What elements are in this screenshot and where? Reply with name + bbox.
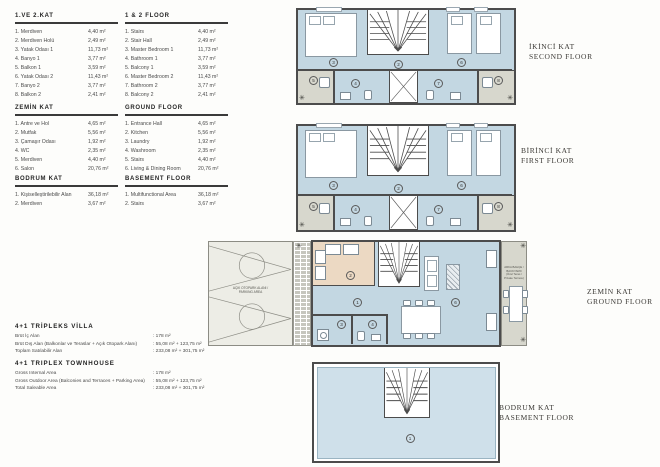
single-bed — [476, 13, 501, 54]
room-area: 3,59 m² — [88, 64, 118, 73]
legend-row: 3. Master Bedroom 1 11,73 m² — [125, 46, 228, 55]
dining-chair — [427, 333, 435, 339]
washing-machine — [317, 329, 329, 341]
dining-chair — [403, 333, 411, 339]
room-area: 3,77 m² — [198, 82, 228, 91]
room-label: 1. Kişiselleştirilebilir Alan — [15, 191, 88, 200]
plant-icon: ✳ — [296, 243, 302, 250]
legend-title: GROUND FLOOR — [125, 105, 228, 111]
room-number-kitchen: 2 — [346, 271, 355, 280]
balcony-left: ✳ — [298, 70, 333, 103]
summary-villa-tr: 4+1 TRİPLEKS VİLLA Brüt İç Alan : 178 m²… — [15, 323, 233, 356]
room-number-multifunctional: 1 — [406, 434, 415, 443]
cushion — [427, 275, 437, 287]
divider — [125, 22, 228, 24]
summary-rows: Gross Internal Area : 178 m² Gross Outdo… — [15, 370, 233, 393]
room-number-bedroom1: 3 — [329, 181, 338, 190]
legend-row: 4. Bathroom 1 3,77 m² — [125, 55, 228, 64]
room-label: 6. Yatak Odası 2 — [15, 73, 88, 82]
room-area: 5,56 m² — [198, 129, 228, 138]
paved-path — [293, 241, 311, 346]
room-area: 1,92 m² — [198, 138, 228, 147]
toilet — [357, 331, 365, 341]
room-label: 2. Mutfak — [15, 129, 88, 138]
room-area: 4,40 m² — [88, 156, 118, 165]
stove — [325, 244, 341, 255]
room-number-bath1: 4 — [351, 79, 360, 88]
summary-row: Toplam Satılabilir Alan : 233,08 m² + 30… — [15, 348, 233, 356]
single-bed — [447, 13, 472, 54]
legend-rows: 1. Multifunctional Area 36,18 m² 2. Stai… — [125, 191, 228, 209]
rug — [446, 264, 460, 290]
toilet — [364, 90, 372, 100]
room-label: 3. Çamaşır Odası — [15, 138, 88, 147]
floor-label-ground: ZEMİN KAT GROUND FLOOR — [587, 287, 653, 307]
window — [474, 7, 488, 12]
room-area: 4,40 m² — [198, 28, 228, 37]
room-label: 4. Banyo 1 — [15, 55, 88, 64]
room-number-bath2: 7 — [434, 79, 443, 88]
legend-row: 2. Mutfak 5,56 m² — [15, 129, 118, 138]
room-area: 20,76 m² — [198, 165, 228, 174]
plan-ground-floor: AÇIK OTOPARK ALANI / PARKING AREA ✳ — [208, 240, 527, 347]
ground-unit: 2 1 3 4 6 — [311, 240, 501, 347]
room-label: 5. Merdiven — [15, 156, 88, 165]
plant-icon: ✳ — [299, 222, 305, 229]
room-area: 3,77 m² — [88, 55, 118, 64]
room-label: 2. Kitchen — [125, 129, 198, 138]
single-bed — [447, 130, 472, 176]
room-number-stairhall: 2 — [394, 184, 403, 193]
cabinet — [486, 313, 497, 331]
legend-basement-tr: BODRUM KAT 1. Kişiselleştirilebilir Alan… — [15, 176, 118, 209]
divider — [15, 114, 118, 116]
legend-row: 3. Çamaşır Odası 1,92 m² — [15, 138, 118, 147]
divider — [15, 22, 118, 24]
room-area: 36,18 m² — [88, 191, 118, 200]
room-label: 6. Salon — [15, 165, 88, 174]
room-label: 8. Balkon 2 — [15, 91, 88, 100]
room-label: 4. Washroom — [125, 147, 198, 156]
room-label: 7. Bathroom 2 — [125, 82, 198, 91]
kitchen — [313, 242, 375, 286]
legend-rows: 1. Kişiselleştirilebilir Alan 36,18 m² 2… — [15, 191, 118, 209]
window — [316, 7, 342, 12]
terrace-chair — [522, 290, 528, 298]
wall — [313, 314, 387, 316]
balcony-right: ✳ — [479, 195, 514, 230]
washer-drum — [320, 332, 327, 339]
room-number-balcony2: 8 — [494, 76, 503, 85]
sink — [340, 92, 351, 100]
toilet — [364, 216, 372, 226]
room-label: 2. Stairs — [125, 200, 198, 209]
legend-row: 1. Multifunctional Area 36,18 m² — [125, 191, 228, 200]
staircase — [367, 10, 429, 55]
basement-room: 1 — [317, 367, 496, 459]
room-area: 11,73 m² — [88, 46, 118, 55]
room-label: 6. Master Bedroom 2 — [125, 73, 198, 82]
legend-row: 7. Banyo 2 3,77 m² — [15, 82, 118, 91]
legend-rows: 1. Merdiven 4,40 m² 2. Merdiven Holü 2,4… — [15, 28, 118, 100]
legend-row: 2. Kitchen 5,56 m² — [125, 129, 228, 138]
room-area: 1,92 m² — [88, 138, 118, 147]
legend-rows: 1. Stairs 4,40 m² 2. Stair Hall 2,49 m² … — [125, 28, 228, 100]
dining-chair — [415, 333, 423, 339]
room-area: 4,40 m² — [88, 28, 118, 37]
room-label: 1. Antre ve Hol — [15, 120, 88, 129]
legend-row: 5. Balcony 1 3,59 m² — [125, 64, 228, 73]
parking-label: AÇIK OTOPARK ALANI / PARKING AREA — [209, 286, 292, 294]
legend-title: 1 & 2 FLOOR — [125, 13, 228, 19]
double-bed — [305, 13, 357, 57]
legend-rows: 1. Antre ve Hol 4,65 m² 2. Mutfak 5,56 m… — [15, 120, 118, 174]
pillow — [480, 133, 492, 142]
room-number-washroom: 4 — [368, 320, 377, 329]
cushion — [427, 260, 437, 272]
legend-row: 1. Kişiselleştirilebilir Alan 36,18 m² — [15, 191, 118, 200]
summary-label: Toplam Satılabilir Alan — [15, 348, 153, 356]
wall — [333, 195, 335, 230]
legend-row: 8. Balcony 2 2,41 m² — [125, 91, 228, 100]
balcony-right: ✳ — [479, 70, 514, 103]
legend-title: 1.VE 2.KAT — [15, 13, 118, 19]
parking-area: AÇIK OTOPARK ALANI / PARKING AREA — [208, 241, 293, 346]
room-number-bedroom1: 3 — [329, 58, 338, 67]
dining-chair — [403, 300, 411, 306]
legend-row: 2. Stairs 3,67 m² — [125, 200, 228, 209]
legend-row: 6. Yatak Odası 2 11,43 m² — [15, 73, 118, 82]
balcony-chair — [319, 77, 330, 88]
plant-icon: ✳ — [520, 337, 526, 344]
single-bed — [476, 130, 501, 176]
floor-label-second: İKİNCİ KAT SECOND FLOOR — [529, 42, 593, 62]
pillow — [451, 16, 463, 25]
summary-value: : 233,08 m² + 301,75 m² — [153, 385, 233, 393]
legend-ground-tr: ZEMİN KAT 1. Antre ve Hol 4,65 m² 2. Mut… — [15, 105, 118, 174]
floor-label-line1: BİRİNCİ KAT — [521, 146, 574, 156]
floor-label-line1: İKİNCİ KAT — [529, 42, 593, 52]
room-label: 1. Multifunctional Area — [125, 191, 198, 200]
legend-row: 2. Merdiven 3,67 m² — [15, 200, 118, 209]
room-area: 2,49 m² — [88, 37, 118, 46]
wall — [386, 314, 388, 344]
summary-townhouse-en: 4+1 TRIPLEX TOWNHOUSE Gross Internal Are… — [15, 360, 233, 393]
legend-row: 8. Balkon 2 2,41 m² — [15, 91, 118, 100]
room-number-balcony1: 5 — [309, 76, 318, 85]
floorplan-sheet: 1.VE 2.KAT 1. Merdiven 4,40 m² 2. Merdiv… — [0, 0, 660, 467]
balcony-left: ✳ — [298, 195, 333, 230]
plant-icon: ✳ — [299, 95, 305, 102]
counter — [315, 266, 326, 280]
legend-ground-en: GROUND FLOOR 1. Entrance Hall 4,65 m² 2.… — [125, 105, 228, 174]
sofa — [424, 256, 439, 291]
room-area: 4,65 m² — [88, 120, 118, 129]
terrace-chair — [522, 306, 528, 314]
legend-row: 1. Antre ve Hol 4,65 m² — [15, 120, 118, 129]
legend-row: 3. Laundry 1,92 m² — [125, 138, 228, 147]
room-area: 4,40 m² — [198, 156, 228, 165]
balcony-chair — [319, 203, 330, 214]
legend-row: 4. WC 2,35 m² — [15, 147, 118, 156]
staircase — [367, 126, 429, 176]
summary-value: : 55,08 m² + 123,75 m² — [153, 378, 233, 386]
room-number-bedroom2: 6 — [457, 58, 466, 67]
double-bed — [305, 130, 357, 178]
room-label: 3. Laundry — [125, 138, 198, 147]
room-label: 3. Yatak Odası 1 — [15, 46, 88, 55]
sink — [371, 334, 381, 341]
summary-label: Brüt İç Alan — [15, 333, 153, 341]
room-number-entrance: 1 — [353, 298, 362, 307]
room-area: 5,56 m² — [88, 129, 118, 138]
legend-row: 7. Bathroom 2 3,77 m² — [125, 82, 228, 91]
floor-label-line2: BASEMENT FLOOR — [499, 413, 574, 423]
room-number-bath1: 4 — [351, 205, 360, 214]
legend-basement-en: BASEMENT FLOOR 1. Multifunctional Area 3… — [125, 176, 228, 209]
room-area: 2,49 m² — [198, 37, 228, 46]
floor-label-line1: BODRUM KAT — [499, 403, 574, 413]
summary-value: : 178 m² — [153, 370, 233, 378]
legend-row: 4. Washroom 2,35 m² — [125, 147, 228, 156]
room-label: 2. Merdiven — [15, 200, 88, 209]
legend-row: 2. Merdiven Holü 2,49 m² — [15, 37, 118, 46]
summary-label: Gross Internal Area — [15, 370, 153, 378]
legend-row: 6. Master Bedroom 2 11,43 m² — [125, 73, 228, 82]
room-label: 8. Balcony 2 — [125, 91, 198, 100]
room-number-living: 6 — [451, 298, 460, 307]
staircase — [384, 368, 430, 418]
room-number-stairhall: 2 — [394, 60, 403, 69]
summary-row: Brüt Dış Alan (Balkonlar ve Teraslar + A… — [15, 341, 233, 349]
room-label: 4. WC — [15, 147, 88, 156]
legend-title: ZEMİN KAT — [15, 105, 118, 111]
pillow — [451, 133, 463, 142]
plan-basement: 1 — [312, 362, 500, 463]
room-area: 11,43 m² — [88, 73, 118, 82]
summary-title: 4+1 TRIPLEX TOWNHOUSE — [15, 360, 233, 367]
legend-floor12-en: 1 & 2 FLOOR 1. Stairs 4,40 m² 2. Stair H… — [125, 13, 228, 100]
sink — [450, 92, 461, 100]
pillow — [480, 16, 492, 25]
room-label: 5. Stairs — [125, 156, 198, 165]
room-area: 36,18 m² — [198, 191, 228, 200]
plant-icon: ✳ — [507, 222, 513, 229]
room-area: 3,59 m² — [198, 64, 228, 73]
room-number-laundry: 3 — [337, 320, 346, 329]
room-area: 11,73 m² — [198, 46, 228, 55]
kitchen-sink — [343, 244, 359, 255]
room-number-bedroom2: 6 — [457, 181, 466, 190]
legend-row: 2. Stair Hall 2,49 m² — [125, 37, 228, 46]
dining-chair — [415, 300, 423, 306]
room-label: 4. Bathroom 1 — [125, 55, 198, 64]
legend-row: 6. Living & Dining Room 20,76 m² — [125, 165, 228, 174]
floor-label-line2: GROUND FLOOR — [587, 297, 653, 307]
room-area: 2,35 m² — [88, 147, 118, 156]
divider — [15, 185, 118, 187]
room-label: 5. Balcony 1 — [125, 64, 198, 73]
legend-row: 5. Merdiven 4,40 m² — [15, 156, 118, 165]
divider — [125, 114, 228, 116]
legend-row: 1. Entrance Hall 4,65 m² — [125, 120, 228, 129]
room-label: 7. Banyo 2 — [15, 82, 88, 91]
legend-title: BASEMENT FLOOR — [125, 176, 228, 182]
summary-row: Brüt İç Alan : 178 m² — [15, 333, 233, 341]
summary-label: Brüt Dış Alan (Balkonlar ve Teraslar + A… — [15, 341, 153, 349]
fridge — [315, 250, 326, 264]
pillow — [323, 133, 335, 142]
light-shaft — [389, 195, 418, 230]
toilet — [426, 216, 434, 226]
plan-second-floor: ✳ ✳ 3 2 6 4 7 5 8 — [296, 8, 516, 105]
back-terrace: ✳ ✳ ARKA BAHÇE / BACKYARD (Özel Teras / … — [501, 241, 527, 346]
sink — [450, 218, 461, 226]
summary-value: : 233,08 m² + 301,75 m² — [153, 348, 233, 356]
summary-row: Gross Internal Area : 178 m² — [15, 370, 233, 378]
legend-rows: 1. Entrance Hall 4,65 m² 2. Kitchen 5,56… — [125, 120, 228, 174]
room-number-balcony2: 8 — [494, 202, 503, 211]
summary-title: 4+1 TRİPLEKS VİLLA — [15, 323, 233, 330]
window — [446, 7, 460, 12]
light-shaft — [389, 70, 418, 103]
window — [446, 123, 460, 128]
summary-row: Total Saleable Area : 233,08 m² + 301,75… — [15, 385, 233, 393]
window — [474, 123, 488, 128]
room-area: 3,77 m² — [88, 82, 118, 91]
room-area: 3,67 m² — [88, 200, 118, 209]
floor-label-first: BİRİNCİ KAT FIRST FLOOR — [521, 146, 574, 166]
floor-label-basement: BODRUM KAT BASEMENT FLOOR — [499, 403, 574, 423]
terrace-chair — [503, 290, 509, 298]
legend-title: BODRUM KAT — [15, 176, 118, 182]
dining-chair — [427, 300, 435, 306]
room-area: 2,41 m² — [198, 91, 228, 100]
wall — [333, 70, 335, 103]
room-label: 5. Balkon 1 — [15, 64, 88, 73]
pillow — [323, 16, 335, 25]
summary-label: Gross Outdoor Area (Balconies and Terrac… — [15, 378, 153, 386]
legend-row: 1. Stairs 4,40 m² — [125, 28, 228, 37]
room-number-bath2: 7 — [434, 205, 443, 214]
legend-row: 4. Banyo 1 3,77 m² — [15, 55, 118, 64]
room-area: 3,67 m² — [198, 200, 228, 209]
room-label: 3. Master Bedroom 1 — [125, 46, 198, 55]
floor-label-line1: ZEMİN KAT — [587, 287, 653, 297]
room-area: 11,43 m² — [198, 73, 228, 82]
tv-unit — [486, 250, 497, 268]
parking-label-line2: PARKING AREA — [209, 290, 292, 294]
floor-label-line2: SECOND FLOOR — [529, 52, 593, 62]
dining-table — [401, 306, 441, 334]
room-label: 1. Entrance Hall — [125, 120, 198, 129]
pillow — [309, 133, 321, 142]
balcony-chair — [482, 77, 493, 88]
staircase — [378, 242, 420, 287]
room-area: 2,41 m² — [88, 91, 118, 100]
room-label: 6. Living & Dining Room — [125, 165, 198, 174]
wall — [351, 314, 353, 344]
summary-rows: Brüt İç Alan : 178 m² Brüt Dış Alan (Bal… — [15, 333, 233, 356]
terrace-table — [509, 286, 523, 322]
legend-row: 5. Balkon 1 3,59 m² — [15, 64, 118, 73]
room-label: 1. Stairs — [125, 28, 198, 37]
room-area: 20,76 m² — [88, 165, 118, 174]
toilet — [426, 90, 434, 100]
sink — [340, 218, 351, 226]
room-area: 4,65 m² — [198, 120, 228, 129]
room-label: 1. Merdiven — [15, 28, 88, 37]
floor-label-line2: FIRST FLOOR — [521, 156, 574, 166]
legend-row: 6. Salon 20,76 m² — [15, 165, 118, 174]
balcony-chair — [482, 203, 493, 214]
plan-first-floor: ✳ ✳ 3 2 6 4 7 5 8 — [296, 124, 516, 232]
terrace-label-line2: (Özel Teras / Private Terrace) — [502, 273, 526, 280]
room-label: 2. Stair Hall — [125, 37, 198, 46]
divider — [125, 185, 228, 187]
terrace-label: ARKA BAHÇE / BACKYARD (Özel Teras / Priv… — [502, 266, 526, 280]
pillow — [309, 16, 321, 25]
legend-row: 5. Stairs 4,40 m² — [125, 156, 228, 165]
room-area: 2,35 m² — [198, 147, 228, 156]
terrace-chair — [503, 306, 509, 314]
summary-row: Gross Outdoor Area (Balconies and Terrac… — [15, 378, 233, 386]
legend-row: 1. Merdiven 4,40 m² — [15, 28, 118, 37]
room-label: 2. Merdiven Holü — [15, 37, 88, 46]
room-number-balcony1: 5 — [309, 202, 318, 211]
plant-icon: ✳ — [520, 243, 526, 250]
plant-icon: ✳ — [507, 95, 513, 102]
summary-label: Total Saleable Area — [15, 385, 153, 393]
legend-floor12-tr: 1.VE 2.KAT 1. Merdiven 4,40 m² 2. Merdiv… — [15, 13, 118, 100]
room-area: 3,77 m² — [198, 55, 228, 64]
window — [316, 123, 342, 128]
legend-row: 3. Yatak Odası 1 11,73 m² — [15, 46, 118, 55]
